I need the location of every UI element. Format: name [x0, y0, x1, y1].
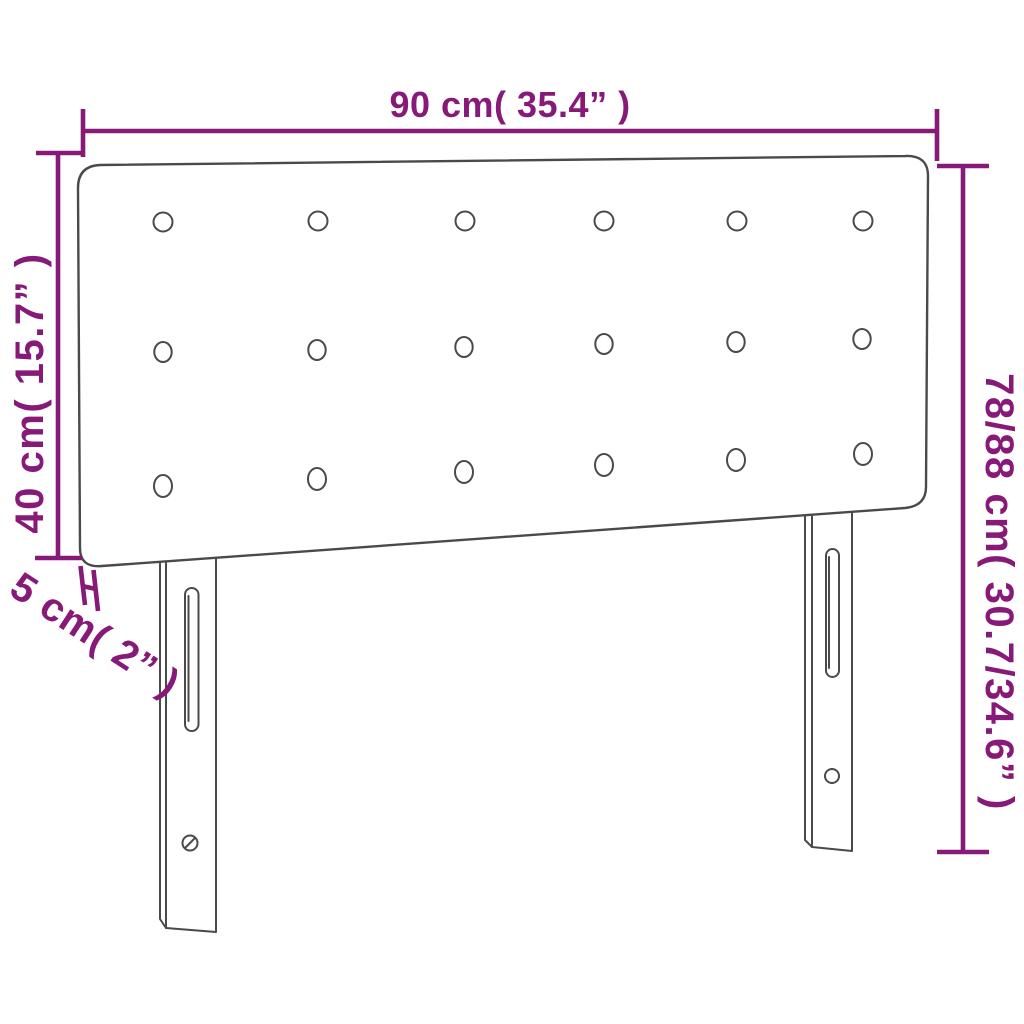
- thickness-connector: [82, 586, 96, 589]
- right-leg-front-face: [812, 505, 852, 851]
- right-leg: [805, 505, 852, 851]
- diagram-canvas: 90 cm( 35.4” ) 40 cm( 15.7” ) 5 cm( 2” )…: [0, 0, 1024, 1024]
- right-leg-side-edge: [805, 510, 812, 847]
- total-height-dimension-label: 78/88 cm( 30.7/34.6” ): [977, 373, 1021, 811]
- width-dimension-label: 90 cm( 35.4” ): [389, 84, 630, 125]
- left-leg: [160, 545, 216, 932]
- headboard-panel: [78, 156, 928, 566]
- left-leg-front-face: [166, 545, 216, 932]
- headboard-dimension-diagram: 90 cm( 35.4” ) 40 cm( 15.7” ) 5 cm( 2” )…: [0, 0, 1024, 1024]
- panel-height-dimension-label: 40 cm( 15.7” ): [8, 252, 52, 533]
